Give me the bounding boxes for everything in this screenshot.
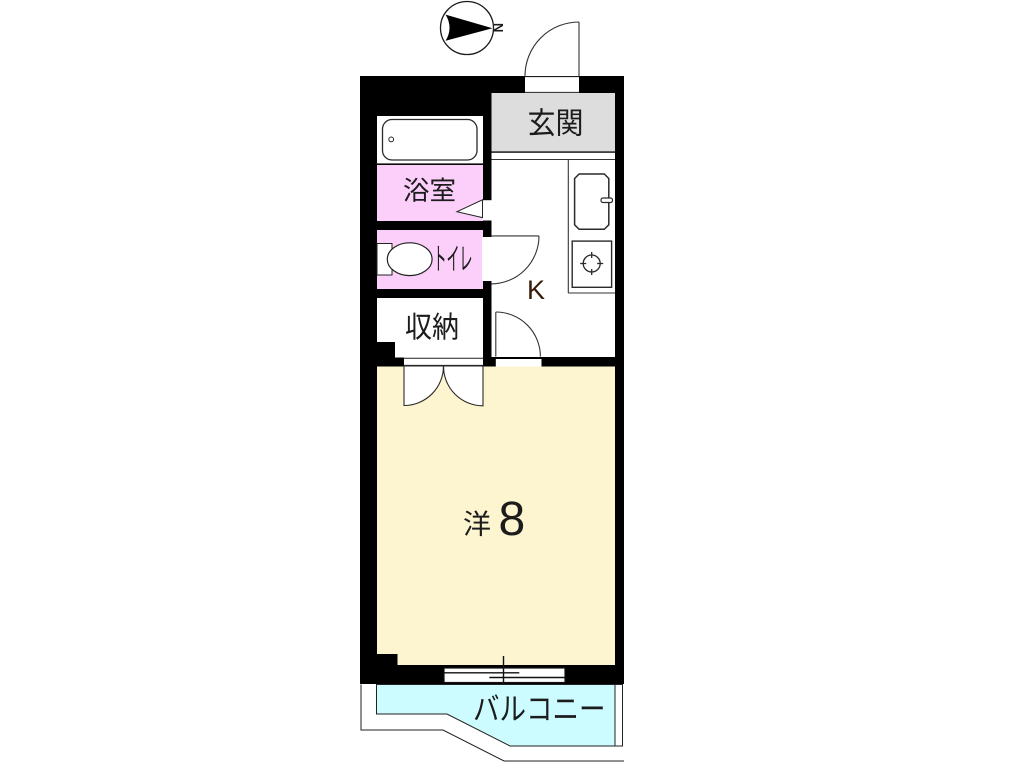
svg-text:8: 8 bbox=[499, 493, 526, 546]
svg-text:K: K bbox=[527, 275, 545, 305]
svg-text:N: N bbox=[491, 23, 506, 32]
